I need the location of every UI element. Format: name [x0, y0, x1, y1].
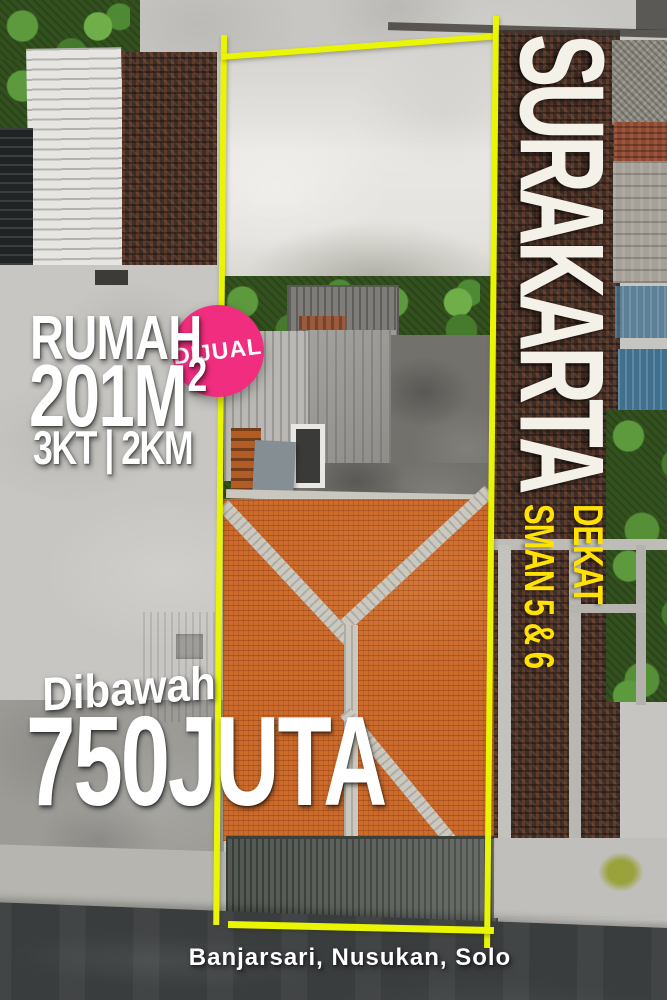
- nearby-line-1: DEKAT: [563, 504, 612, 704]
- weed-patch: [598, 852, 644, 892]
- white-corrugated-roof: [26, 47, 125, 271]
- empty-land-plane: [220, 38, 500, 290]
- dark-vent-rect: [95, 270, 128, 285]
- city-name-vertical: SURAKARTA: [501, 34, 621, 514]
- property-listing-poster: RUMAH DIJUAL 201M2 3KT | 2KM Dibawah 750…: [0, 0, 667, 1000]
- footer-location: Banjarsari, Nusukan, Solo: [170, 946, 530, 970]
- area-superscript: 2: [187, 349, 205, 402]
- chimney-brick: [299, 316, 345, 330]
- nearby-school-vertical: DEKAT SMAN 5 & 6: [513, 504, 612, 704]
- rooms-spec: 3KT | 2KM: [33, 424, 242, 471]
- concrete-path-vertical-2: [636, 545, 646, 705]
- top-right-dark-panel: [636, 0, 667, 30]
- nearby-line-2: SMAN 5 & 6: [513, 504, 562, 704]
- price-amount: 750JUTA: [26, 698, 539, 825]
- house-window: [291, 424, 325, 488]
